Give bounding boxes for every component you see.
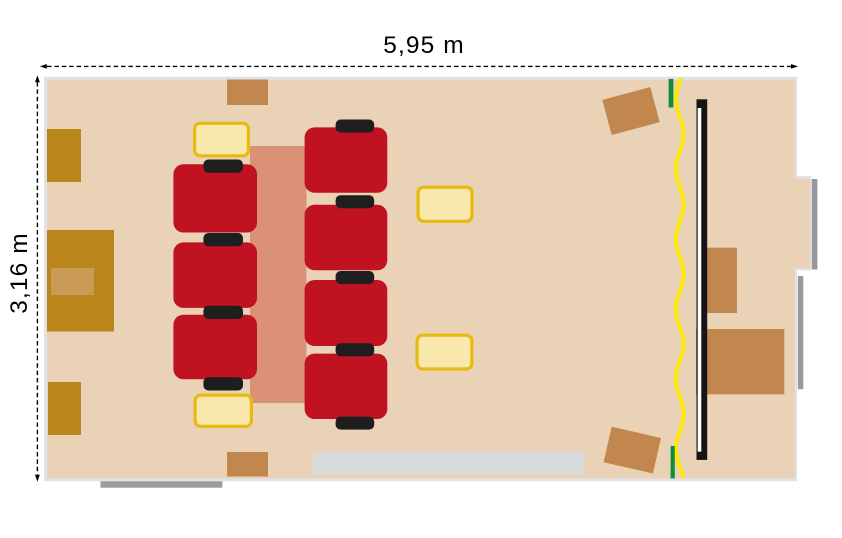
- svg-text:3,16 m: 3,16 m: [6, 232, 33, 314]
- svg-text:5,95 m: 5,95 m: [383, 32, 465, 59]
